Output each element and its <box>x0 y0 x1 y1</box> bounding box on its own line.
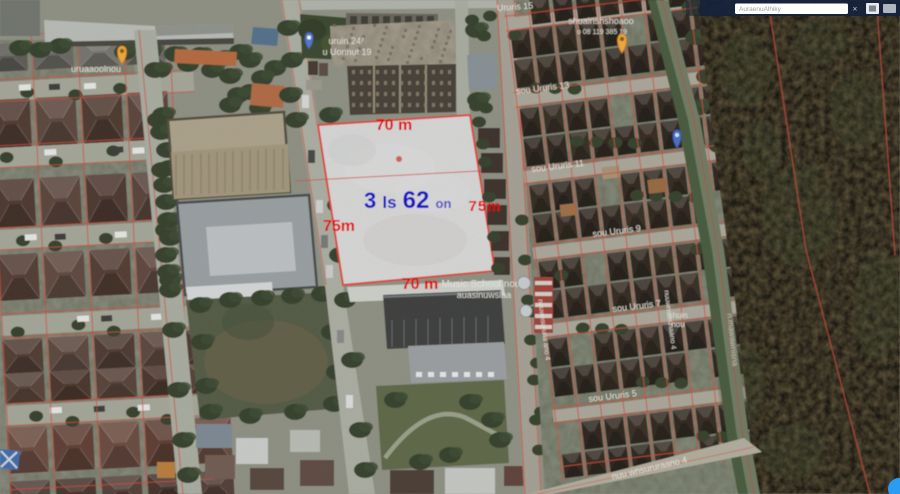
svg-text:70 m: 70 m <box>402 276 438 293</box>
svg-text:75m: 75m <box>323 218 355 235</box>
svg-text:AuraenuAlhiky: AuraenuAlhiky <box>739 6 782 13</box>
svg-text:×: × <box>853 5 858 14</box>
svg-text:75m: 75m <box>468 198 501 215</box>
svg-text:70 m: 70 m <box>376 117 412 134</box>
